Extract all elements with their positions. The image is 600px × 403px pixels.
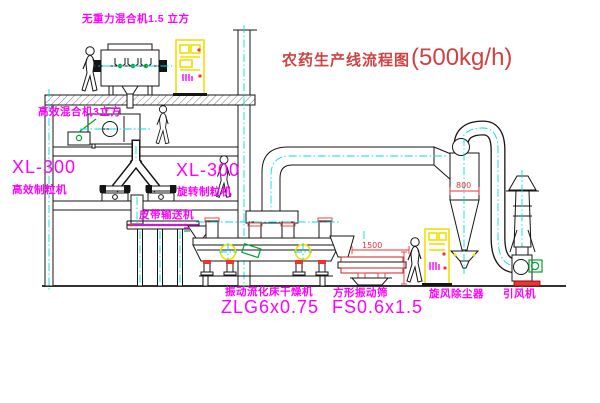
cyclone-inlet-transition	[434, 147, 451, 180]
label-belt-conveyor: 皮带输送机	[139, 210, 194, 221]
label-granulator-left-name: 高效制粒机	[12, 185, 67, 196]
label-granulator-mid-model: XL-300	[176, 161, 240, 179]
person-ground	[407, 238, 422, 282]
mixer-discharge-duct	[127, 94, 133, 108]
dryer-manifold	[246, 211, 298, 223]
dryer-top-plate	[193, 238, 339, 245]
flow-diagram-canvas: 1500 800 农药生产线流程图(500kg/h) 无重力混合机1.5 立方 …	[0, 0, 600, 403]
induced-draft-fan	[512, 247, 542, 286]
cyclone-outlet-ring	[453, 139, 470, 156]
dim-cyclone-width: 800	[456, 181, 471, 190]
title-capacity: (500kg/h)	[411, 44, 512, 71]
control-cabinet-ground	[422, 229, 452, 286]
label-fan: 引风机	[503, 289, 536, 300]
cyclone-body	[450, 153, 479, 200]
label-dryer-model: ZLG6x0.75	[221, 298, 319, 316]
conveyor-legs	[138, 229, 183, 286]
mid-slab	[53, 147, 238, 156]
label-sieve-model: FS0.6x1.5	[332, 298, 423, 316]
cyclone-separator	[450, 153, 479, 268]
roof-slab	[45, 95, 255, 105]
title-chinese: 农药生产线流程图	[282, 52, 410, 69]
dryer-body	[193, 245, 339, 261]
fluid-bed-dryer	[193, 211, 340, 286]
fan-base	[514, 281, 540, 286]
label-granulator-mid-name: 旋转制粒机	[177, 187, 232, 198]
square-sieve	[330, 231, 409, 285]
label-cyclone: 旋风除尘器	[429, 289, 484, 300]
dim-sieve-width: 1500	[362, 241, 382, 250]
rotary-granulator-left	[100, 185, 130, 201]
label-dryer-name: 振动流化床干燥机	[225, 287, 313, 298]
label-top-mixer: 无重力混合机1.5 立方	[82, 14, 190, 25]
label-granulator-left-model: XL-300	[12, 158, 76, 176]
dryer-vibration-mounts	[201, 260, 328, 275]
control-cabinet-top	[173, 40, 207, 96]
cyclone-cone	[450, 200, 479, 250]
rotary-granulator-right	[146, 185, 176, 201]
label-floor2-mixer: 高效混合机3立方	[38, 107, 121, 118]
page-title: 农药生产线流程图(500kg/h)	[282, 44, 512, 72]
dryer-exhaust-duct	[262, 147, 451, 218]
person-floor2	[156, 106, 169, 144]
